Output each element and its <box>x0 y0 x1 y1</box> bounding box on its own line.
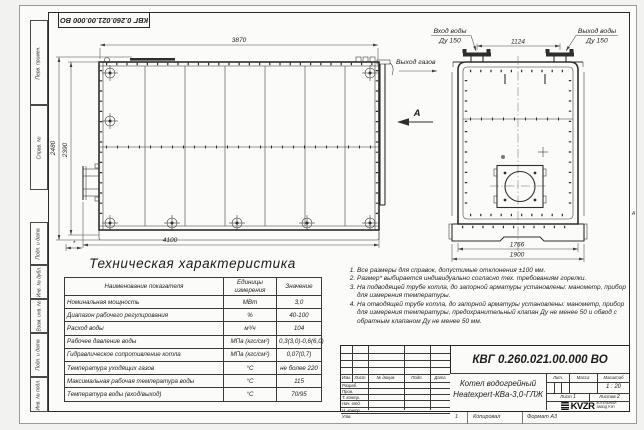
kvzr-logo-icon <box>561 402 569 410</box>
spec-cell: Расход воды <box>65 322 224 335</box>
dim-height-inner: 2390 <box>62 142 69 158</box>
grid-line <box>547 382 630 383</box>
zone-marker: А <box>631 211 636 217</box>
water-outlet-dn: Ду 150 <box>585 38 608 45</box>
lifting-lug-mark <box>102 113 118 129</box>
spec-row: Рабочее давление водыМПа (кгс/см²)0,3(3,… <box>65 335 322 348</box>
grid-line <box>341 360 450 361</box>
lifting-lug-mark <box>229 215 245 231</box>
spec-cell: °С <box>224 388 277 401</box>
note-item: На отводящей трубе котла, до запорной ар… <box>357 301 628 326</box>
role-utv: Утв. <box>341 413 450 419</box>
lifting-lug-mark <box>362 215 378 231</box>
gas-outlet-label: Выход газов <box>396 58 436 66</box>
doc-number: КВГ 0.260.021.00.000 ВО <box>450 346 629 373</box>
spec-header-row: Наименование показателя Единицы измерени… <box>65 278 322 296</box>
col-list: Лист <box>352 375 368 382</box>
spec-row: Максимальная рабочая температура воды°С1… <box>65 375 322 388</box>
spec-cell: Температура воды (вход/выход) <box>65 388 224 401</box>
kvzr-logo-subtext: КОТЕЛЬНЫЙ ЗАВОД РЭП <box>596 402 616 410</box>
annotations-between-views: Выход газов А <box>396 58 437 126</box>
note-item: На подводящей трубе котла, до запорной а… <box>357 284 628 301</box>
spec-cell: Диапазон рабочего регулирования <box>65 309 224 322</box>
footer-divider <box>467 412 468 424</box>
spec-header-units: Единицы измерения <box>224 278 277 296</box>
spec-cell: Рабочее давление воды <box>65 335 224 348</box>
lifting-lug-mark <box>102 215 118 231</box>
product-name-line1: Котел водогрейный <box>450 379 546 390</box>
boiler-front-view <box>449 49 587 252</box>
spec-cell: 0,3(3,0)-0,6(6,0) <box>277 335 322 348</box>
footer-number: 1 <box>455 414 458 420</box>
company-logo-cell: KVZR КОТЕЛЬНЫЙ ЗАВОД РЭП <box>547 401 630 411</box>
spec-cell: МПа (кгс/см²) <box>224 348 277 361</box>
lit-mass-scale-area: Лит. Масса Масштаб 1 : 20 Лист 1 Листов … <box>546 373 629 410</box>
spec-cell: 70/95 <box>277 388 322 401</box>
water-outlet-pipe <box>546 49 575 62</box>
spec-row: Температура уходящих газов°Сне более 220 <box>65 361 322 374</box>
mass-label: Масса <box>569 375 597 380</box>
spec-cell: 40-100 <box>277 309 322 322</box>
spec-row: Номинальная мощностьМВт3,0 <box>65 296 322 309</box>
spec-row: Диапазон рабочего регулирования%40-100 <box>65 309 322 322</box>
lifting-lug-mark <box>299 215 315 231</box>
col-data: Дата <box>430 375 450 382</box>
dim-height-outer: 2480 <box>50 140 57 156</box>
scale-value: 1 : 20 <box>597 384 630 390</box>
water-outlet-label: Выход воды <box>578 27 616 35</box>
front-plate <box>83 164 99 201</box>
water-inlet-dn: Ду 150 <box>438 38 461 45</box>
water-inlet-pipe <box>463 49 492 62</box>
product-name: Котел водогрейный Heatexpert-КВа-3,0-ГЛЖ <box>450 373 546 410</box>
sheet-cell: Лист 1 <box>547 394 589 400</box>
grid-line <box>341 367 450 368</box>
spec-cell: % <box>224 309 277 322</box>
grid-line <box>561 382 562 393</box>
spec-cell: МВт <box>224 296 277 309</box>
scale-label: Масштаб <box>597 375 630 380</box>
lifting-lug-mark <box>164 215 180 231</box>
burner-flange <box>494 166 546 208</box>
spec-cell: Максимальная рабочая температура воды <box>65 375 224 388</box>
sheets-number: 2 <box>617 394 620 400</box>
signature-rows: Разраб. Пров. Т. контр. Нач. отд. Н. кон… <box>341 382 450 410</box>
note-item: Размер* выбирается индивидуально согласн… <box>357 275 628 283</box>
notes: Все размеры для справок, допустимые откл… <box>344 267 628 326</box>
col-izm: Изм. <box>341 375 352 382</box>
spec-cell: 0,07(0,7) <box>277 348 322 361</box>
spec-row: Гидравлическое сопротивление котлаМПа (к… <box>65 348 322 361</box>
spec-header-name: Наименование показателя <box>65 278 224 296</box>
spec-cell: Номинальная мощность <box>65 296 224 309</box>
footer-copied-label: Копировал <box>473 414 500 420</box>
title-block: Изм. Лист № докум. Подп. Дата Разраб. Пр… <box>340 345 630 412</box>
spec-cell: 3,0 <box>277 296 322 309</box>
water-inlet-callout: Вход воды Ду 150 <box>431 27 476 51</box>
spec-cell: 115 <box>277 375 322 388</box>
col-podp: Подп. <box>404 375 430 382</box>
spec-cell: МПа (кгс/см²) <box>224 335 277 348</box>
spec-cell: °С <box>224 375 277 388</box>
dim-top-width: 3870 <box>232 37 247 44</box>
product-name-line2: Heatexpert-КВа-3,0-ГЛЖ <box>450 390 546 401</box>
spec-table-title: Техническая характеристика <box>64 256 321 271</box>
dim-base-outer: 1900 <box>510 252 525 259</box>
spec-cell: не более 220 <box>277 361 322 374</box>
water-inlet-label: Вход воды <box>434 27 467 35</box>
lit-label: Лит. <box>547 375 569 380</box>
lifting-lug-mark <box>362 65 378 81</box>
spec-cell: °С <box>224 361 277 374</box>
fitting-dot <box>501 155 505 159</box>
spec-table: Наименование показателя Единицы измерени… <box>64 277 322 402</box>
spec-cell: Температура уходящих газов <box>65 361 224 374</box>
kvzr-logo-text: KVZR <box>571 401 595 412</box>
col-docnum: № докум. <box>368 375 404 382</box>
sheet-label: Лист <box>560 394 572 399</box>
spec-cell: 104 <box>277 322 322 335</box>
sheets-cell: Листов 2 <box>589 394 630 400</box>
footer-format-label: Формат А3 <box>527 414 557 420</box>
sheet-number: 1 <box>573 394 576 400</box>
grid-line <box>554 382 555 393</box>
lifting-lug-mark <box>102 65 118 81</box>
footer-divider <box>522 412 523 424</box>
drawing-sheet: Перв. примен. Справ. № Подп. и дата Инв.… <box>0 0 644 430</box>
spec-row: Расход водым³/ч104 <box>65 322 322 335</box>
spec-cell: м³/ч <box>224 322 277 335</box>
view-direction-arrowhead <box>397 118 409 126</box>
sheets-label: Листов <box>599 394 615 399</box>
view-direction-label: А <box>413 108 421 119</box>
spec-row: Температура воды (вход/выход)°С70/95 <box>65 388 322 401</box>
logo-line2: ЗАВОД РЭП <box>596 406 616 410</box>
revision-header-row: Изм. Лист № докум. Подп. Дата <box>341 374 450 382</box>
dim-burner-length: * <box>73 240 76 247</box>
top-lug-plate <box>130 58 175 61</box>
water-outlet-callout: Выход воды Ду 150 <box>566 27 618 51</box>
dim-base-inner: 1766 <box>510 242 525 249</box>
dim-bottom-width: 4100 <box>163 237 178 244</box>
grid-line <box>341 353 450 354</box>
spec-header-value: Значение <box>277 278 322 296</box>
boiler-side-view <box>83 57 393 240</box>
spec-cell: Гидравлическое сопротивление котла <box>65 348 224 361</box>
dim-pipe-span: 1124 <box>511 39 525 46</box>
